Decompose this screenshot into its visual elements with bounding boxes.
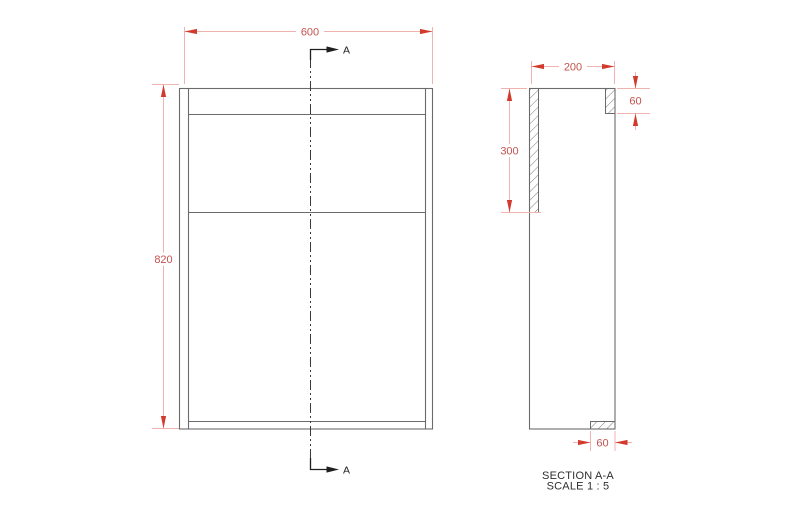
dim-300-arrow-down-icon [507, 200, 512, 213]
dim-60bot-label: 60 [596, 438, 608, 450]
dim-60bot-arrow-right-icon [578, 440, 591, 445]
dim-300-arrow-up-icon [507, 89, 512, 102]
dim-60top-arrow-up-icon [633, 114, 638, 127]
dim-60top-label: 60 [629, 96, 641, 108]
section-marker-bottom-arrow-icon [327, 466, 340, 472]
section-marker-top-label: A [343, 45, 350, 57]
section-marker-bottom-label: A [343, 465, 350, 477]
section-top-rail-hatched [606, 89, 616, 114]
section-view [530, 89, 616, 430]
dim-front-width: 600 [185, 25, 433, 84]
front-view-outline [180, 89, 433, 430]
dim-60top-arrow-down-icon [633, 76, 638, 89]
dim-front-height: 820 [150, 85, 180, 429]
technical-drawing-canvas: A A 600 820 [0, 0, 800, 513]
dim-600-arrow-left-icon [185, 29, 198, 34]
section-title-block: SECTION A-A SCALE 1 : 5 [542, 470, 614, 493]
dim-200-label: 200 [564, 62, 582, 74]
dim-60bot-arrow-left-icon [615, 440, 628, 445]
dim-200-arrow-left-icon [532, 64, 545, 69]
front-view [180, 89, 433, 430]
section-marker-top-arrow-icon [327, 46, 340, 52]
section-left-panel-hatched [530, 89, 539, 213]
drawing-svg: A A 600 820 [0, 0, 800, 513]
dim-600-label: 600 [301, 27, 319, 39]
dim-section-bottom-rail: 60 [573, 431, 632, 451]
section-marker-bottom-line [311, 458, 329, 470]
dim-600-arrow-right-icon [420, 29, 433, 34]
dim-200-arrow-right-icon [602, 64, 615, 69]
dim-820-arrow-down-icon [161, 416, 166, 429]
dim-820-arrow-up-icon [161, 85, 166, 98]
dim-section-top-rail: 60 [617, 72, 650, 130]
section-cut-marker-bottom: A [311, 458, 351, 477]
dim-300-label: 300 [500, 146, 518, 158]
section-cut-marker-top: A [311, 45, 351, 61]
section-view-outline [530, 89, 616, 430]
section-marker-top-line [311, 50, 329, 61]
section-bottom-rail-hatched [591, 422, 616, 430]
dim-section-depth: 200 [532, 60, 615, 84]
dim-820-label: 820 [154, 254, 172, 266]
section-scale: SCALE 1 : 5 [547, 481, 610, 493]
